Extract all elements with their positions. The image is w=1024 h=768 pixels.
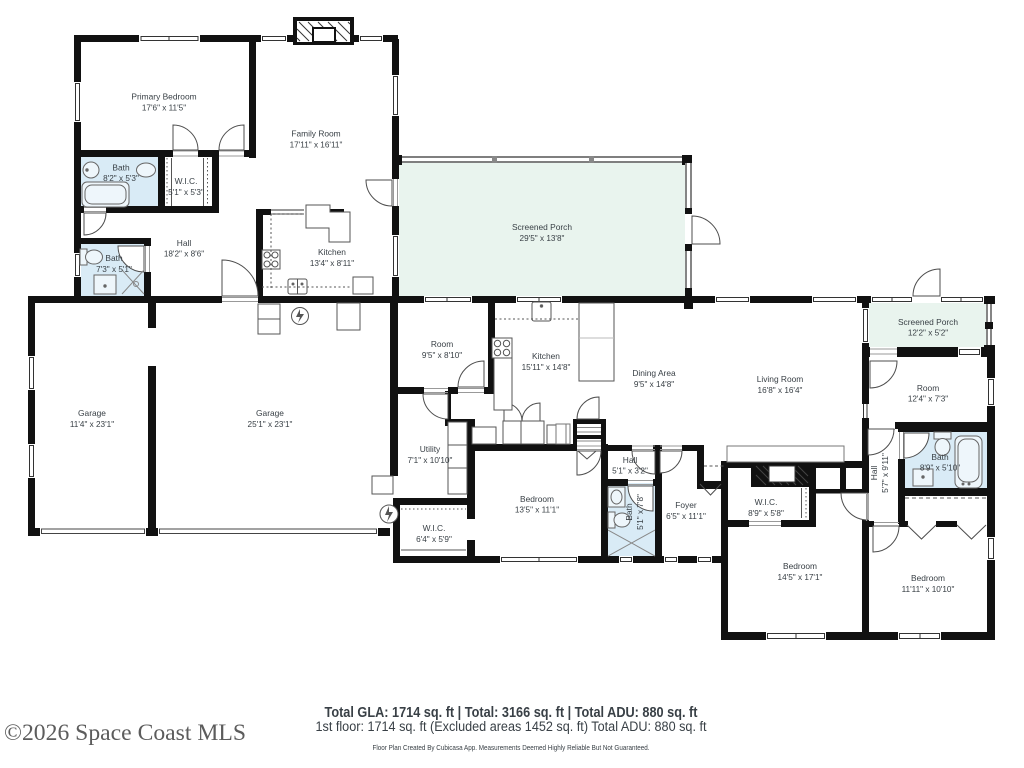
svg-text:7'3" x 5'1": 7'3" x 5'1": [96, 265, 132, 274]
svg-text:Hall: Hall: [623, 455, 638, 465]
svg-text:16'8" x 16'4": 16'8" x 16'4": [758, 386, 803, 395]
svg-text:8'9" x 5'8": 8'9" x 5'8": [748, 509, 784, 518]
svg-text:Bedroom: Bedroom: [911, 573, 945, 583]
svg-text:11'4" x 23'1": 11'4" x 23'1": [70, 420, 114, 429]
svg-text:9'5" x 14'8": 9'5" x 14'8": [634, 380, 674, 389]
svg-text:12'2" x 5'2": 12'2" x 5'2": [908, 329, 948, 338]
svg-text:Utility: Utility: [420, 444, 441, 454]
svg-text:Kitchen: Kitchen: [532, 351, 560, 361]
svg-text:7'1" x 10'10": 7'1" x 10'10": [408, 456, 453, 465]
svg-text:W.I.C.: W.I.C.: [755, 497, 778, 507]
svg-text:Bedroom: Bedroom: [520, 494, 554, 504]
svg-text:5'7" x 9'11": 5'7" x 9'11": [881, 453, 890, 493]
svg-text:W.I.C.: W.I.C.: [423, 523, 446, 533]
svg-text:Bath: Bath: [105, 253, 123, 263]
svg-text:17'6" x 11'5": 17'6" x 11'5": [142, 104, 186, 113]
svg-text:5'1" x 3'2": 5'1" x 3'2": [612, 467, 648, 476]
svg-text:Bath: Bath: [112, 163, 130, 173]
svg-text:13'4" x 8'11": 13'4" x 8'11": [310, 259, 354, 268]
svg-text:6'5" x 11'1": 6'5" x 11'1": [666, 512, 706, 521]
svg-text:Room: Room: [431, 339, 453, 349]
svg-text:Garage: Garage: [78, 408, 106, 418]
svg-text:15'11" x 14'8": 15'11" x 14'8": [522, 363, 571, 372]
svg-text:©2026 Space Coast MLS: ©2026 Space Coast MLS: [4, 720, 246, 745]
svg-text:Hall: Hall: [177, 238, 192, 248]
svg-text:9'5" x 8'10": 9'5" x 8'10": [422, 351, 462, 360]
svg-text:Screened Porch: Screened Porch: [898, 317, 958, 327]
svg-text:Room: Room: [917, 383, 939, 393]
svg-text:Foyer: Foyer: [675, 500, 697, 510]
svg-text:8'9" x 5'10": 8'9" x 5'10": [920, 464, 960, 473]
svg-text:Family Room: Family Room: [291, 129, 340, 139]
svg-text:W.I.C.: W.I.C.: [175, 176, 198, 186]
svg-text:Kitchen: Kitchen: [318, 247, 346, 257]
svg-text:11'11" x 10'10": 11'11" x 10'10": [902, 585, 955, 594]
svg-text:Bath: Bath: [624, 503, 634, 521]
svg-text:29'5" x 13'8": 29'5" x 13'8": [520, 234, 565, 243]
svg-text:Dining Area: Dining Area: [632, 368, 676, 378]
svg-text:Screened Porch: Screened Porch: [512, 222, 572, 232]
svg-text:12'4" x 7'3": 12'4" x 7'3": [908, 395, 948, 404]
svg-text:Primary Bedroom: Primary Bedroom: [131, 92, 196, 102]
svg-text:Bath: Bath: [931, 452, 949, 462]
svg-text:Hall: Hall: [869, 466, 879, 481]
svg-text:13'5" x 11'1": 13'5" x 11'1": [515, 506, 559, 515]
svg-text:6'4" x 5'9": 6'4" x 5'9": [416, 535, 452, 544]
svg-text:14'5" x 17'1": 14'5" x 17'1": [778, 573, 823, 582]
svg-text:25'1" x 23'1": 25'1" x 23'1": [248, 420, 293, 429]
svg-text:Bedroom: Bedroom: [783, 561, 817, 571]
svg-text:Living Room: Living Room: [757, 374, 804, 384]
svg-text:1st floor: 1714 sq. ft (Exclud: 1st floor: 1714 sq. ft (Excluded areas 1…: [316, 719, 707, 734]
svg-text:18'2" x 8'6": 18'2" x 8'6": [164, 250, 204, 259]
svg-text:Garage: Garage: [256, 408, 284, 418]
svg-text:8'2" x 5'3": 8'2" x 5'3": [103, 174, 139, 183]
svg-text:5'1" x 7'8": 5'1" x 7'8": [636, 494, 645, 530]
svg-text:Floor Plan Created By Cubicasa: Floor Plan Created By Cubicasa App. Meas…: [373, 743, 650, 752]
svg-text:5'1" x 5'3": 5'1" x 5'3": [168, 188, 204, 197]
svg-text:17'11" x 16'11": 17'11" x 16'11": [290, 141, 343, 150]
